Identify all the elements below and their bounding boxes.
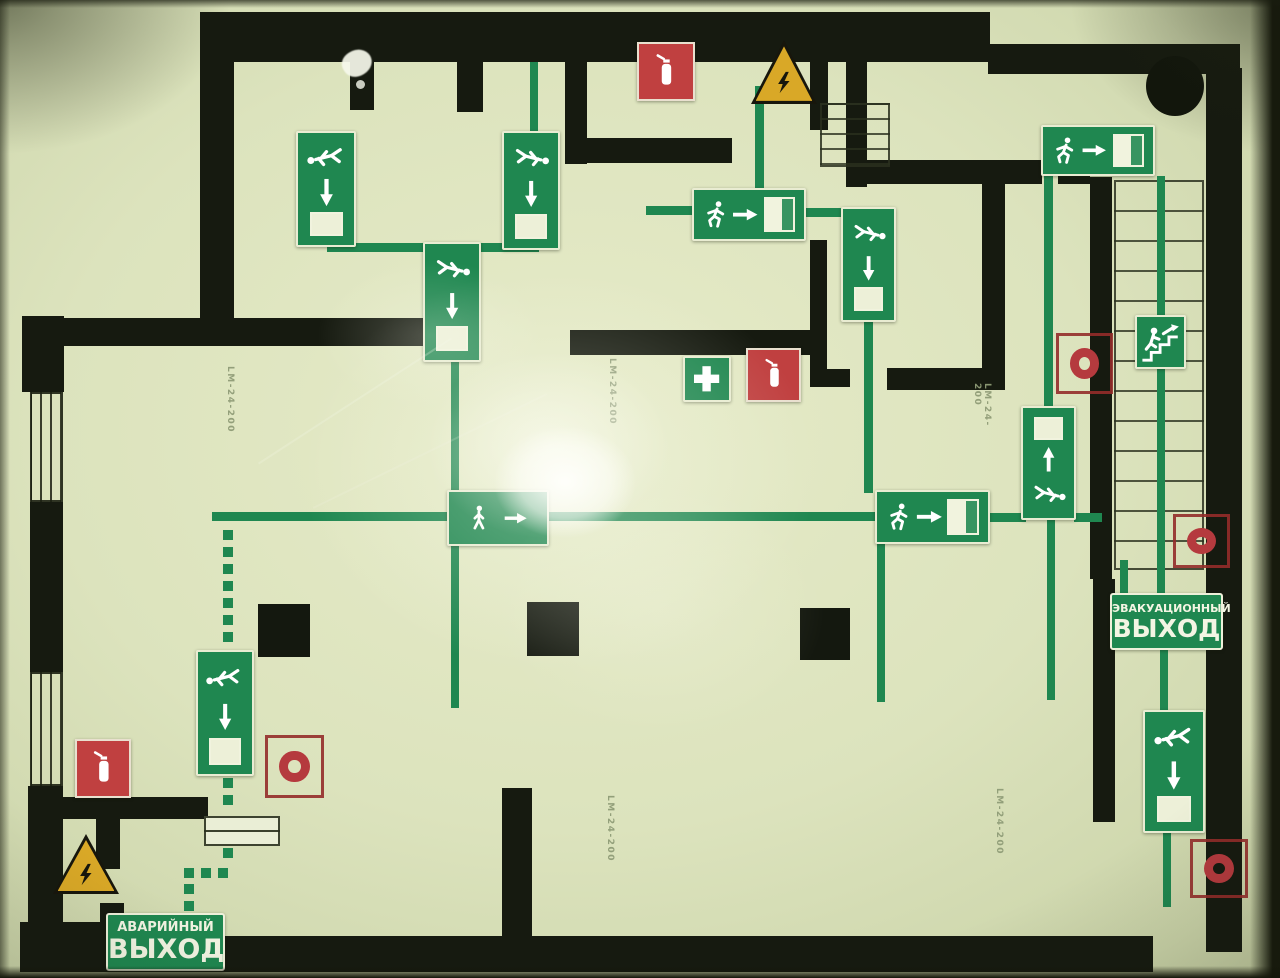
- door-symbol: [764, 197, 796, 232]
- floorplan-canvas: ЭВАКУАЦИОННЫЙВЫХОДАВАРИЙНЫЙВЫХОДLM-24-20…: [0, 0, 1280, 978]
- exit-direction-sign: [1041, 125, 1155, 176]
- arrow-right-icon: [504, 511, 527, 525]
- stairs-up-sign: [1135, 315, 1186, 369]
- arrow-up-icon: [1041, 445, 1056, 474]
- first-aid-cross-icon: [685, 358, 729, 400]
- evacuation-route-line: [212, 512, 452, 521]
- evacuation-route-line: [864, 318, 873, 493]
- exit-sign-evacuation: ЭВАКУАЦИОННЫЙВЫХОД: [1110, 593, 1223, 650]
- evacuation-route-dash: [223, 598, 233, 608]
- fire-alarm-call-point-sign: [1173, 514, 1230, 568]
- evacuation-route-line: [1047, 518, 1055, 700]
- evacuation-route-dash: [184, 884, 194, 894]
- wall: [1206, 68, 1242, 952]
- alarm-ring-icon: [279, 751, 310, 783]
- walking-man-icon: [469, 499, 489, 537]
- door-symbol: [515, 214, 547, 239]
- wall: [867, 160, 1042, 184]
- electric-hazard-sign: [751, 40, 817, 104]
- door-symbol: [1157, 796, 1191, 822]
- exit-direction-sign: [692, 188, 806, 241]
- arrow-down-icon: [217, 701, 233, 733]
- evacuation-route-line: [1074, 513, 1102, 522]
- evacuation-route-dash: [223, 530, 233, 540]
- evacuation-route-dash: [223, 581, 233, 591]
- crawl-man-down-icon: [510, 142, 551, 174]
- wall: [457, 62, 483, 112]
- arrow-right-icon: [916, 509, 943, 525]
- fire-alarm-call-point-sign: [1056, 333, 1113, 394]
- fire-extinguisher-sign: [75, 739, 131, 798]
- crawl-man-up-icon: [1029, 479, 1068, 510]
- wall: [20, 922, 102, 972]
- exit-sign-line2: ВЫХОД: [1112, 616, 1221, 641]
- fire-extinguisher-sign: [637, 42, 695, 101]
- evacuation-direction-sign: [296, 131, 356, 247]
- running-man-icon: [703, 196, 727, 233]
- window-strip: [30, 392, 63, 502]
- model-label: LM-24-200: [603, 358, 617, 458]
- evacuation-route-line: [1120, 560, 1128, 594]
- evacuation-route-line: [530, 62, 538, 132]
- evacuation-route-dash: [184, 901, 194, 911]
- evacuation-plan-photo: ЭВАКУАЦИОННЫЙВЫХОДАВАРИЙНЫЙВЫХОДLM-24-20…: [0, 0, 1280, 978]
- lightning-bolt-icon: [62, 846, 110, 892]
- route-direction-sign: [447, 490, 549, 546]
- column-pillar: [527, 602, 579, 656]
- wall: [200, 12, 990, 62]
- wall: [982, 184, 1005, 390]
- fire-extinguisher-icon: [639, 44, 693, 99]
- column-pillar: [258, 604, 310, 657]
- round-column: [1146, 56, 1204, 116]
- evacuation-route-dash: [223, 547, 233, 557]
- evacuation-route-line: [646, 206, 696, 215]
- alarm-ring-icon: [1187, 528, 1217, 555]
- crawl-man-down-icon: [849, 218, 888, 249]
- evacuation-route-dash: [223, 795, 233, 805]
- exit-direction-sign: [875, 490, 990, 544]
- small-staircase: [820, 103, 890, 167]
- evacuation-route-dash: [223, 632, 233, 642]
- evacuation-route-dash: [223, 615, 233, 625]
- door-symbol: [947, 499, 979, 535]
- wall: [30, 502, 63, 672]
- evacuation-direction-sign: [196, 650, 254, 776]
- door-symbol: [209, 738, 241, 764]
- model-label: LM-24-200: [990, 788, 1004, 876]
- evacuation-direction-sign: [423, 242, 481, 362]
- window-strip: [30, 672, 63, 786]
- door-symbol: [1034, 417, 1064, 440]
- exit-sign-emergency: АВАРИЙНЫЙВЫХОД: [106, 913, 225, 971]
- evacuation-route-dash: [223, 778, 233, 788]
- evacuation-route-line: [548, 512, 878, 521]
- evacuation-route-dash: [201, 868, 211, 878]
- evacuation-route-line: [1160, 650, 1168, 712]
- wall: [810, 240, 827, 387]
- evacuation-route-line: [877, 542, 885, 702]
- door-symbol: [436, 326, 468, 351]
- arrow-down-icon: [444, 291, 460, 321]
- table: [204, 816, 280, 846]
- wall: [988, 44, 1240, 74]
- wall: [200, 12, 234, 330]
- evacuation-route-dash: [184, 868, 194, 878]
- arrow-right-icon: [1081, 143, 1108, 158]
- arrow-down-icon: [861, 254, 876, 283]
- fire-extinguisher-sign: [746, 348, 801, 402]
- crawl-man-down-icon: [431, 253, 472, 285]
- lightning-bolt-icon: [760, 53, 808, 102]
- electric-hazard-sign: [53, 834, 119, 894]
- wall: [350, 62, 374, 110]
- evacuation-direction-sign: [1143, 710, 1205, 833]
- evacuation-route-line: [804, 208, 843, 217]
- evacuation-route-dash: [223, 848, 233, 858]
- exit-sign-line2: ВЫХОД: [108, 936, 223, 963]
- exit-sign-line1: ЭВАКУАЦИОННЫЙ: [1112, 603, 1221, 614]
- door-symbol: [854, 287, 884, 311]
- model-label: LM-24-200: [601, 795, 615, 883]
- model-label: LM-24-200: [221, 366, 235, 446]
- arrow-down-icon: [318, 178, 335, 207]
- evacuation-direction-sign: [841, 207, 896, 322]
- column-pillar: [800, 608, 850, 660]
- alarm-ring-icon: [1204, 854, 1234, 884]
- arrow-down-icon: [1165, 760, 1183, 791]
- first-aid-sign: [683, 356, 731, 402]
- crawl-man-down-icon: [204, 661, 245, 695]
- evacuation-direction-sign: [1021, 406, 1076, 520]
- fire-extinguisher-icon: [748, 350, 799, 400]
- crawl-man-down-icon: [1152, 721, 1197, 754]
- fire-alarm-call-point-sign: [1190, 839, 1248, 898]
- evacuation-direction-sign: [502, 131, 560, 250]
- exit-sign-line1: АВАРИЙНЫЙ: [108, 921, 223, 934]
- fire-extinguisher-icon: [77, 741, 129, 796]
- model-label: LM-24-200: [978, 383, 992, 433]
- evacuation-route-line: [1044, 174, 1053, 408]
- alarm-ring-icon: [1070, 348, 1100, 379]
- evacuation-route-dash: [223, 564, 233, 574]
- door-symbol: [1113, 134, 1145, 168]
- wall: [810, 369, 850, 387]
- evacuation-route-dash: [218, 868, 228, 878]
- door-symbol: [310, 212, 343, 236]
- wall: [33, 318, 445, 346]
- crawl-man-down-icon: [305, 142, 348, 173]
- wall: [502, 788, 532, 938]
- wall: [565, 138, 732, 163]
- running-man-icon: [886, 498, 911, 536]
- running-man-icon: [1052, 133, 1076, 168]
- wall: [28, 797, 208, 819]
- stairs-up-man-icon: [1138, 319, 1182, 366]
- arrow-right-icon: [732, 207, 759, 222]
- fire-alarm-call-point-sign: [265, 735, 324, 798]
- arrow-down-icon: [523, 179, 539, 209]
- evacuation-route-line: [1157, 176, 1165, 594]
- evacuation-route-line: [1163, 831, 1171, 907]
